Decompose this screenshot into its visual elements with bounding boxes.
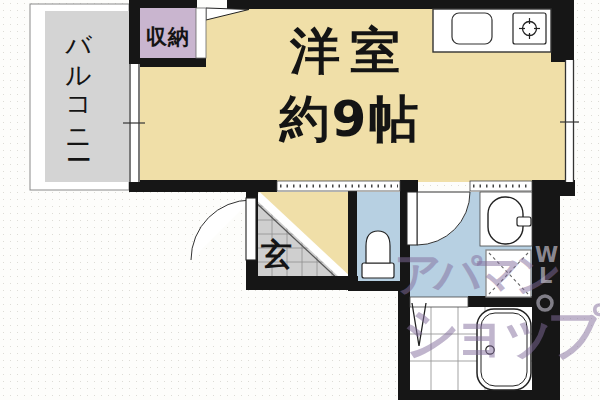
toilet-icon [362,231,394,278]
washbasin-faucet [517,217,531,226]
floor-plan: 洋室 約9帖 バルコニー 収納 玄 アパマン ショップ W L [0,0,600,400]
front-door-leaf [246,198,256,260]
main-room-label: 洋室 [190,26,510,76]
storage-label: 収納 [140,23,196,51]
wall-letter-l: L [539,264,552,288]
washbasin-icon [480,192,532,246]
entrance-label: 玄 [261,234,292,276]
washroom-door-leaf [407,192,417,245]
main-room-size-label: 約9帖 [190,94,510,144]
watermark-line2: ショップ [402,295,595,372]
balcony-label: バルコニー [62,16,97,149]
front-door-icon [191,198,256,260]
